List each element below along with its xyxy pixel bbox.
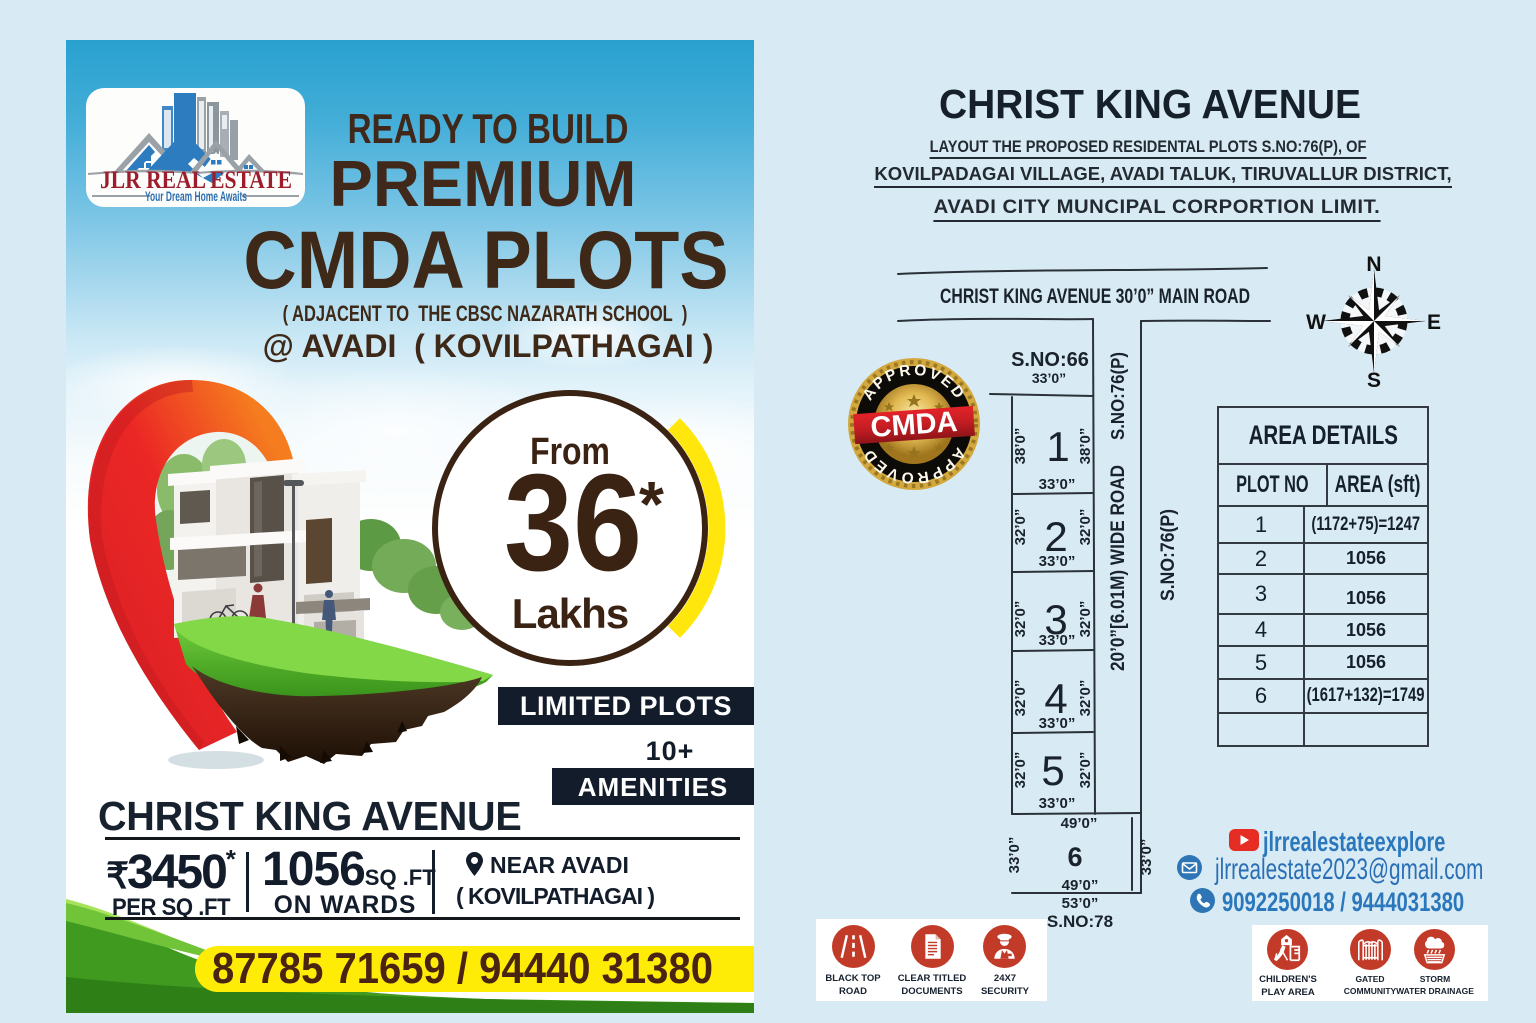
svg-text:49’0”: 49’0” <box>1062 877 1099 894</box>
svg-text:20’0”[6.01M) WIDE ROAD: 20’0”[6.01M) WIDE ROAD <box>1108 465 1129 671</box>
svg-text:1: 1 <box>1046 423 1069 470</box>
svg-text:33’0”: 33’0” <box>1039 632 1076 649</box>
svg-text:32’0”: 32’0” <box>1077 509 1094 546</box>
svg-text:49’0”: 49’0” <box>1061 815 1098 832</box>
svg-text:33’0”: 33’0” <box>1039 795 1076 812</box>
svg-text:33’0”: 33’0” <box>1039 476 1076 493</box>
svg-text:S.NO:66: S.NO:66 <box>1011 349 1089 371</box>
svg-text:38’0”: 38’0” <box>1077 428 1094 465</box>
svg-text:53’0”: 53’0” <box>1062 895 1099 912</box>
svg-text:33’0”: 33’0” <box>1039 715 1076 732</box>
svg-text:33’0”: 33’0” <box>1039 553 1076 570</box>
svg-text:33’0”: 33’0” <box>1006 837 1023 874</box>
svg-text:E: E <box>1427 311 1441 334</box>
svg-text:33’0”: 33’0” <box>1032 370 1066 386</box>
svg-text:W: W <box>1306 311 1326 334</box>
svg-text:32’0”: 32’0” <box>1077 680 1094 717</box>
svg-text:N: N <box>1366 253 1381 276</box>
svg-text:S: S <box>1367 369 1381 391</box>
svg-text:Your Dream Home Awaits: Your Dream Home Awaits <box>145 188 247 204</box>
svg-text:S.NO:76(P): S.NO:76(P) <box>1158 509 1179 601</box>
svg-text:32’0”: 32’0” <box>1077 752 1094 789</box>
svg-text:S.NO:76(P): S.NO:76(P) <box>1108 352 1128 440</box>
svg-text:32’0”: 32’0” <box>1012 680 1029 717</box>
svg-text:CHRIST KING AVENUE 30’0” MAIN: CHRIST KING AVENUE 30’0” MAIN ROAD <box>940 285 1250 308</box>
svg-text:32’0”: 32’0” <box>1012 509 1029 546</box>
svg-text:38’0”: 38’0” <box>1012 428 1029 465</box>
svg-text:5: 5 <box>1041 747 1064 794</box>
svg-text:6: 6 <box>1067 842 1082 872</box>
svg-text:32’0”: 32’0” <box>1012 752 1029 789</box>
svg-text:CMDA: CMDA <box>870 406 959 444</box>
svg-text:32’0”: 32’0” <box>1077 601 1094 638</box>
svg-text:32’0”: 32’0” <box>1012 601 1029 638</box>
svg-text:S.NO:78: S.NO:78 <box>1047 912 1113 930</box>
svg-text:33’0”: 33’0” <box>1138 839 1155 876</box>
